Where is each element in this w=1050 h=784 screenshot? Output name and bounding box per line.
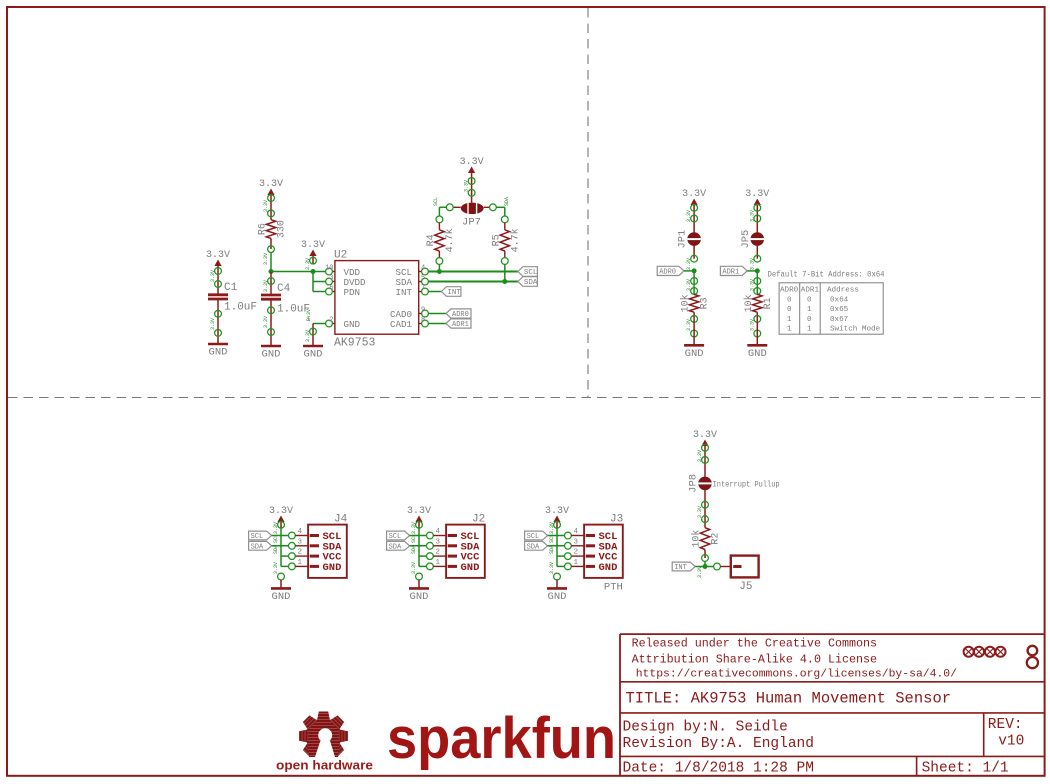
svg-text:3: 3 — [298, 538, 303, 546]
svg-text:1: 1 — [298, 559, 303, 567]
svg-text:GND: GND — [748, 348, 767, 360]
svg-text:3.3V: 3.3V — [210, 270, 216, 282]
svg-text:3.3V: 3.3V — [545, 506, 569, 517]
svg-text:Design by:N. Seidle: Design by:N. Seidle — [623, 720, 788, 736]
svg-text:J2: J2 — [472, 513, 485, 525]
svg-text:0x64: 0x64 — [830, 296, 849, 304]
svg-text:1.0uF: 1.0uF — [224, 301, 257, 313]
svg-text:1: 1 — [436, 559, 441, 567]
svg-text:SCL: SCL — [433, 197, 439, 206]
svg-text:R1: R1 — [763, 297, 774, 309]
svg-text:SDA: SDA — [273, 545, 279, 554]
svg-text:3.3V: 3.3V — [273, 522, 279, 534]
svg-text:3.3V: 3.3V — [411, 562, 417, 574]
svg-text:4.7k: 4.7k — [444, 228, 456, 252]
svg-text:GND: GND — [262, 349, 281, 361]
svg-text:4: 4 — [436, 528, 441, 536]
svg-text:3.3V: 3.3V — [686, 258, 692, 270]
svg-text:3.3V: 3.3V — [682, 189, 706, 200]
svg-text:Sheet: 1/1: Sheet: 1/1 — [922, 760, 1009, 776]
svg-text:4: 4 — [574, 528, 579, 536]
svg-text:4: 4 — [421, 264, 425, 272]
svg-text:SDA: SDA — [549, 545, 555, 554]
svg-text:J3: J3 — [610, 513, 623, 525]
svg-text:JP7: JP7 — [462, 216, 481, 228]
svg-text:0: 0 — [787, 296, 792, 304]
svg-text:SDA: SDA — [251, 543, 264, 551]
svg-text:SCL: SCL — [411, 534, 417, 543]
svg-text:GND: GND — [304, 349, 323, 361]
svg-text:4: 4 — [298, 528, 303, 536]
svg-text:SCL: SCL — [549, 534, 555, 543]
svg-text:Switch Mode: Switch Mode — [830, 326, 881, 334]
svg-text:3.3V: 3.3V — [206, 250, 230, 261]
svg-text:JP8: JP8 — [688, 474, 700, 493]
svg-text:J5: J5 — [739, 581, 752, 593]
svg-text:SCL: SCL — [389, 533, 402, 541]
svg-text:0: 0 — [807, 296, 812, 304]
svg-text:3.3V: 3.3V — [745, 189, 769, 200]
svg-text:SCL: SCL — [251, 533, 264, 541]
svg-text:10k: 10k — [680, 294, 692, 312]
svg-text:J4: J4 — [334, 513, 348, 525]
svg-text:3.3V: 3.3V — [259, 179, 283, 190]
svg-text:SCL: SCL — [527, 533, 540, 541]
svg-text:GND: GND — [599, 562, 618, 574]
svg-text:1: 1 — [807, 306, 812, 314]
svg-text:10k: 10k — [691, 530, 703, 548]
svg-text:3: 3 — [329, 274, 333, 282]
svg-text:ADR1: ADR1 — [452, 321, 469, 329]
svg-text:Address: Address — [827, 287, 859, 295]
svg-text:3.3V: 3.3V — [263, 280, 269, 292]
svg-text:Attribution Share-Alike 4.0 Li: Attribution Share-Alike 4.0 License — [632, 652, 877, 666]
svg-text:Default 7-Bit Address: 0x64: Default 7-Bit Address: 0x64 — [768, 269, 885, 279]
svg-text:REV:: REV: — [988, 717, 1023, 733]
svg-text:SDA: SDA — [389, 543, 402, 551]
svg-text:7: 7 — [421, 284, 425, 292]
svg-text:ADR0: ADR0 — [452, 311, 469, 319]
svg-text:GND: GND — [272, 591, 291, 603]
svg-text:ADR1: ADR1 — [801, 287, 820, 295]
svg-text:SDA: SDA — [504, 197, 510, 206]
svg-text:3.3V: 3.3V — [263, 316, 269, 328]
svg-text:1: 1 — [787, 316, 792, 324]
svg-text:R3: R3 — [700, 297, 711, 309]
svg-text:INT: INT — [447, 289, 461, 297]
svg-text:SCL: SCL — [273, 534, 279, 543]
svg-text:JP5: JP5 — [740, 230, 752, 249]
svg-text:C1: C1 — [224, 282, 238, 294]
svg-text:GND: GND — [410, 591, 429, 603]
svg-text:3.3V: 3.3V — [263, 200, 269, 212]
svg-text:9: 9 — [421, 306, 425, 314]
svg-text:5: 5 — [421, 274, 425, 282]
svg-text:3.3V: 3.3V — [697, 506, 703, 518]
svg-text:JP1: JP1 — [677, 230, 689, 249]
svg-text:v10: v10 — [998, 734, 1024, 750]
svg-text:0: 0 — [787, 306, 792, 314]
svg-text:R2: R2 — [711, 533, 722, 545]
svg-text:TITLE: AK9753 Human Movement S: TITLE: AK9753 Human Movement Sensor — [626, 690, 952, 708]
svg-text:0: 0 — [807, 316, 812, 324]
svg-text:R4: R4 — [426, 234, 437, 246]
svg-text:2: 2 — [329, 316, 333, 324]
svg-text:SDA: SDA — [527, 543, 540, 551]
svg-text:3: 3 — [574, 538, 579, 546]
svg-text:GND: GND — [323, 562, 342, 574]
svg-text:C4: C4 — [277, 283, 291, 295]
svg-text:3.3V: 3.3V — [273, 562, 279, 574]
svg-text:PTH: PTH — [604, 582, 623, 594]
svg-text:ADR0: ADR0 — [659, 269, 676, 277]
svg-text:3.3V: 3.3V — [549, 522, 555, 534]
svg-text:AK9753: AK9753 — [334, 337, 376, 350]
svg-text:INT: INT — [674, 564, 687, 572]
svg-text:3.3V: 3.3V — [411, 522, 417, 534]
svg-text:GND: GND — [344, 319, 361, 330]
svg-text:3.3V: 3.3V — [305, 258, 311, 270]
svg-text:10k: 10k — [743, 294, 755, 312]
svg-text:sparkfun: sparkfun — [387, 706, 616, 771]
svg-text:2: 2 — [298, 549, 303, 557]
svg-text:Revision By:A. England: Revision By:A. England — [623, 736, 814, 752]
svg-text:3.3V: 3.3V — [549, 562, 555, 574]
svg-text:SCL: SCL — [524, 269, 538, 277]
svg-text:3.3V: 3.3V — [269, 506, 293, 517]
svg-text:3.3V: 3.3V — [749, 258, 755, 270]
svg-text:3.3V: 3.3V — [693, 430, 717, 441]
svg-text:ADR1: ADR1 — [722, 269, 739, 277]
svg-text:3.3V: 3.3V — [407, 506, 431, 517]
svg-text:3.3V: 3.3V — [686, 319, 692, 331]
svg-text:INT: INT — [395, 287, 412, 298]
svg-text:1: 1 — [574, 559, 579, 567]
svg-text:open hardware: open hardware — [276, 758, 373, 773]
svg-text:6: 6 — [329, 284, 333, 292]
svg-text:GND: GND — [209, 347, 228, 359]
svg-text:GND: GND — [548, 591, 567, 603]
svg-text:R5: R5 — [491, 234, 502, 246]
svg-text:3: 3 — [436, 538, 441, 546]
svg-text:1: 1 — [787, 326, 792, 334]
svg-text:3.3V: 3.3V — [749, 319, 755, 331]
svg-text:SDA: SDA — [524, 279, 538, 287]
svg-text:PDN: PDN — [344, 287, 361, 298]
svg-text:0x65: 0x65 — [830, 306, 849, 314]
svg-text:8: 8 — [421, 316, 425, 324]
svg-text:4.7k: 4.7k — [509, 228, 521, 252]
svg-text:CAD1: CAD1 — [390, 319, 413, 330]
svg-text:10: 10 — [325, 264, 333, 272]
svg-text:ADR0: ADR0 — [780, 287, 799, 295]
svg-text:330: 330 — [277, 220, 288, 238]
svg-text:GND: GND — [461, 562, 480, 574]
svg-text:SDA: SDA — [411, 545, 417, 554]
svg-text:3.3V: 3.3V — [301, 240, 325, 251]
svg-text:3.3V: 3.3V — [306, 309, 312, 321]
svg-text:1: 1 — [807, 326, 812, 334]
svg-text:Date: 1/8/2018 1:28 PM: Date: 1/8/2018 1:28 PM — [623, 760, 814, 776]
svg-text:Released under the Creative Co: Released under the Creative Commons — [632, 637, 877, 651]
svg-text:3.3V: 3.3V — [697, 566, 703, 578]
svg-text:3.3V: 3.3V — [305, 330, 311, 342]
svg-text:U2: U2 — [334, 249, 347, 261]
svg-text:3.3V: 3.3V — [460, 157, 484, 168]
svg-text:2: 2 — [574, 549, 579, 557]
svg-text:Interrupt Pullup: Interrupt Pullup — [713, 479, 780, 489]
svg-text:2: 2 — [436, 549, 441, 557]
svg-text:GND: GND — [685, 348, 704, 360]
svg-text:R6: R6 — [258, 223, 269, 235]
svg-text:0x67: 0x67 — [830, 316, 848, 324]
svg-text:https://creativecommons.org/li: https://creativecommons.org/licenses/by-… — [636, 668, 957, 680]
svg-text:3.3V: 3.3V — [263, 253, 269, 265]
svg-text:3.3V: 3.3V — [210, 318, 216, 330]
